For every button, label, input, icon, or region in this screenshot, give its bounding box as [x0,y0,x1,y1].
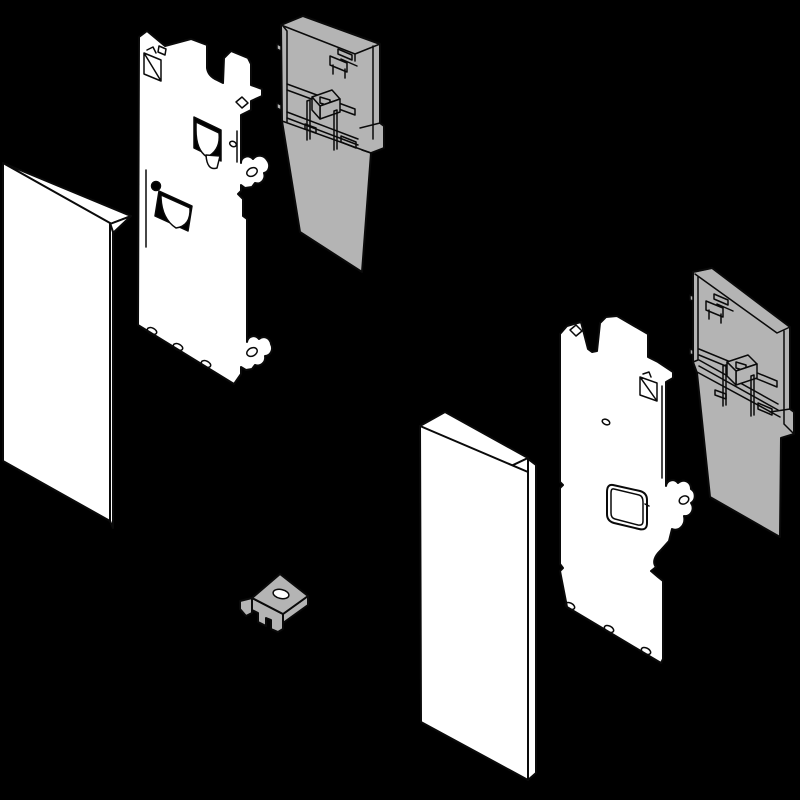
diagram-canvas [0,0,800,800]
front-panel-right [420,412,536,780]
clip-wing [240,598,252,616]
edge-lug [690,349,693,355]
housing-silhouette [281,16,384,272]
panel-face [420,426,528,780]
lower-window-pilot-hole [152,182,161,191]
edge-lug [277,103,281,110]
clip-nut-center [240,574,308,632]
housing-right [690,268,794,537]
exploded-view-svg [0,0,800,800]
bracket-outline [560,316,695,663]
edge-lug [277,44,281,51]
housing-left [277,16,384,272]
bracket-plate-right [560,316,695,663]
panel-side-edge [528,459,536,780]
panel-face [3,163,110,521]
front-panel-left [3,163,131,528]
bracket-plate-left [138,31,272,384]
edge-lug [690,295,693,301]
